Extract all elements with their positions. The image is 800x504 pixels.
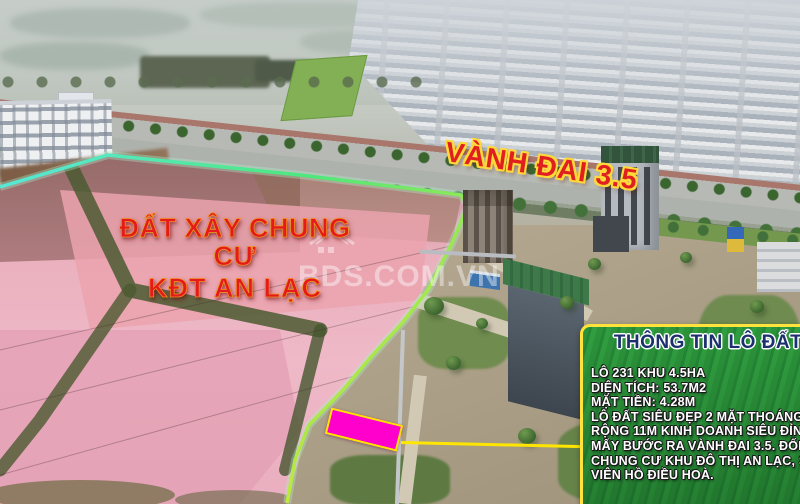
- land-label-line2: KĐT AN LẠC: [115, 274, 355, 302]
- info-line: VIÊN HỒ ĐIỀU HOÀ.: [591, 468, 800, 483]
- land-label: ĐẤT XÂY CHUNG CƯ KĐT AN LẠC: [115, 214, 355, 302]
- info-line: CHUNG CƯ KHU ĐÔ THỊ AN LẠC, SÁT: [591, 454, 800, 469]
- aerial-photo-canvas: BDS.COM.VN ĐẤT XÂY CHUNG CƯ KĐT AN LẠC V…: [0, 0, 800, 504]
- tower-annex: [593, 216, 629, 252]
- kiosk: [727, 227, 744, 252]
- tree: [588, 258, 601, 270]
- info-line: LÔ 231 KHU 4.5HA: [591, 366, 800, 381]
- tree: [560, 296, 574, 309]
- tree: [680, 252, 692, 263]
- tree: [750, 300, 764, 313]
- tree: [476, 318, 488, 329]
- info-line: LÔ ĐẤT SIÊU ĐẸP 2 MẶT THOÁNG, ĐƯ: [591, 410, 800, 425]
- land-label-line1: ĐẤT XÂY CHUNG CƯ: [115, 214, 355, 271]
- info-line: DIỆN TÍCH: 53.7M2: [591, 381, 800, 396]
- white-building-right: [757, 242, 800, 292]
- tree: [518, 428, 536, 444]
- info-box-title: THÔNG TIN LÔ ĐẤT: [583, 332, 800, 354]
- info-line: RỘNG 11M KINH DOANH SIÊU ĐỈNH.: [591, 424, 800, 439]
- info-box-lines: LÔ 231 KHU 4.5HA DIỆN TÍCH: 53.7M2 MẶT T…: [583, 366, 800, 483]
- tree: [424, 297, 444, 315]
- info-box: THÔNG TIN LÔ ĐẤT LÔ 231 KHU 4.5HA DIỆN T…: [580, 324, 800, 504]
- tree: [446, 356, 461, 370]
- info-line: MẤY BƯỚC RA VÀNH ĐAI 3.5. ĐỐI DI: [591, 439, 800, 454]
- info-line: MẶT TIỀN: 4.28M: [591, 395, 800, 410]
